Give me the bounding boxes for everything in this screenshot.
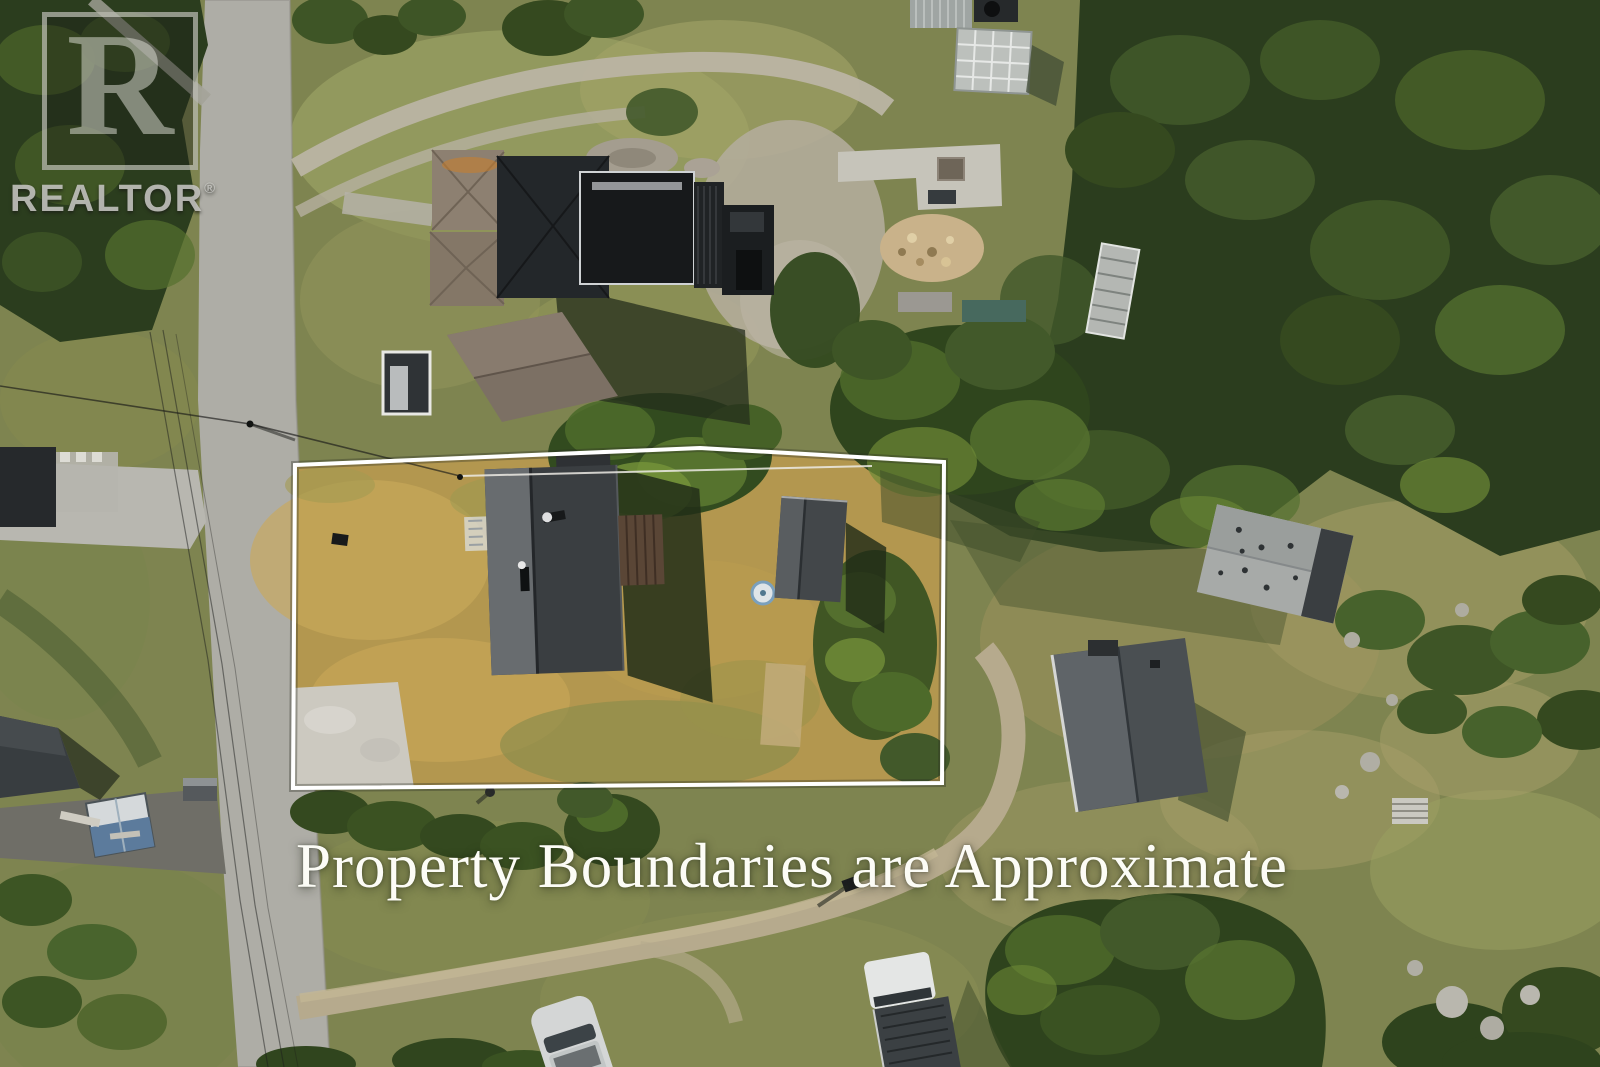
subject-deck [618,514,664,585]
garden-bed [760,663,806,748]
aerial-scene [0,0,1600,1067]
caption-text: Property Boundaries are Approximate [0,830,1584,903]
aerial-photo: R REALTOR® Property Boundaries are Appro… [0,0,1600,1067]
subject-house [462,447,713,711]
west-house-partial [0,447,56,527]
garden-table [962,300,1026,322]
subject-roof-lit-face [484,468,537,675]
yard-object [331,533,348,546]
gravel-corner [293,682,414,788]
fire-pit [938,158,964,180]
metal-shed [910,0,972,28]
